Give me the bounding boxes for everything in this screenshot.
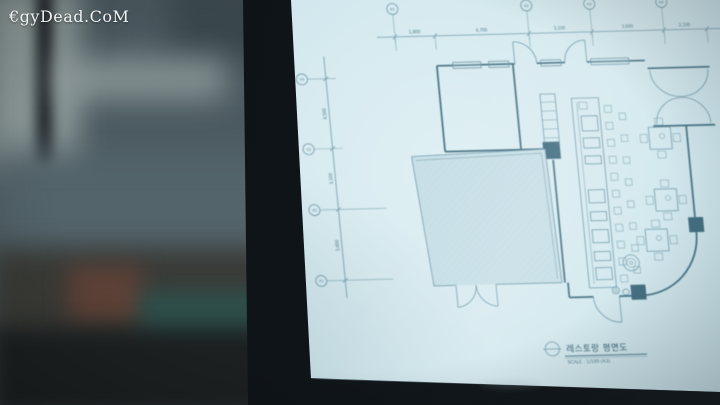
watermark-text: €gyDead.CoM: [9, 7, 129, 26]
movie-frame: 1,8004,7003,1003,6002,100 4,5003,1003,60…: [0, 0, 720, 405]
vignette-overlay: [0, 0, 720, 405]
